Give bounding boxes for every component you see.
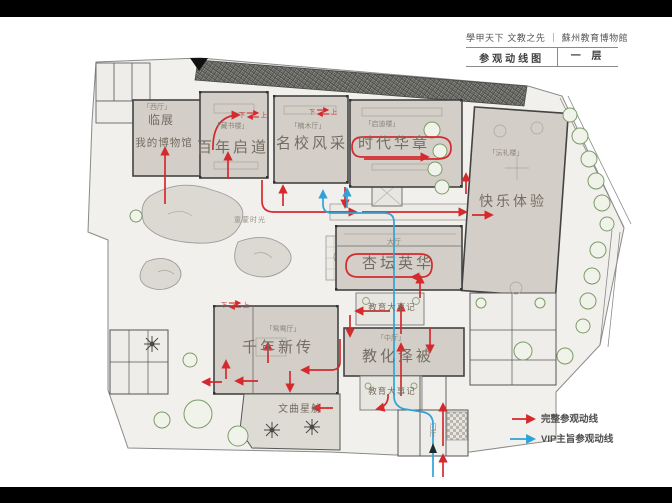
label-mingxiao-fengcai: 名校风采 (276, 135, 348, 152)
label-qiannian-xinchuan: 千年新传 (242, 339, 314, 356)
label-jiaoyu-dashiji-upper: 教育大事记 (368, 302, 416, 312)
hall-wenqu-xingfang (240, 394, 340, 450)
label-jiaoyu-dashiji-lower: 教育大事记 (368, 386, 416, 396)
label-qidilou: 「启迪楼」 (365, 119, 400, 128)
label-bainian-qidao: 百年启道 (197, 139, 269, 156)
label-nanmuting: 「楠木厅」 (291, 121, 326, 130)
stair-up-2: 上 (331, 107, 338, 116)
label-my-museum: 我的博物馆 (135, 136, 193, 149)
label-cangshulou: 「藏书楼」 (214, 121, 249, 130)
southwest-rooms (110, 330, 168, 394)
label-jiaohua-zebei: 教化泽被 (362, 348, 434, 365)
label-zhongting: 「中厅」 (377, 333, 405, 342)
label-wenqu-xingfang: 文曲星舫 (278, 402, 322, 415)
legend-vip-route: VIP主旨参观动线 (541, 433, 614, 445)
label-yunlilou: 「沄礼楼」 (489, 148, 524, 157)
southeast-rooms (470, 293, 556, 385)
stair-up-1: 上 (261, 110, 268, 119)
label-west-hall: 「西厅」 (143, 103, 171, 111)
label-tongmeng-shiguang: 童蒙时光 (234, 215, 266, 224)
floor-plan: 「西厅」 临展 我的博物馆 「藏书楼」 百年启道 「楠木厅」 名校风采 「启迪楼… (0, 0, 672, 503)
label-shidai-huazhang: 时代华章 (358, 134, 430, 152)
slide: 學甲天下 文教之先 ｜ 蘇州教育博物館 参观动线图 一 层 (0, 0, 672, 503)
label-menting: 门厅 (429, 422, 437, 437)
stair-down-1: 下 (239, 111, 246, 119)
label-dating: 大厅 (387, 237, 401, 246)
legend-full-route: 完整参观动线 (541, 413, 599, 425)
label-yuanyangting: 「鸳鸯厅」 (266, 324, 301, 333)
label-kuaile-tiyan: 快乐体验 (479, 194, 547, 210)
stair-down-3: 下 (221, 301, 228, 309)
stair-up-3: 上 (243, 300, 250, 309)
label-linzhan: 临展 (148, 113, 174, 127)
stair-down-2: 下 (309, 108, 316, 116)
label-xingtan-yinghua: 杏坛英华 (362, 254, 434, 272)
paved-court (447, 412, 467, 440)
